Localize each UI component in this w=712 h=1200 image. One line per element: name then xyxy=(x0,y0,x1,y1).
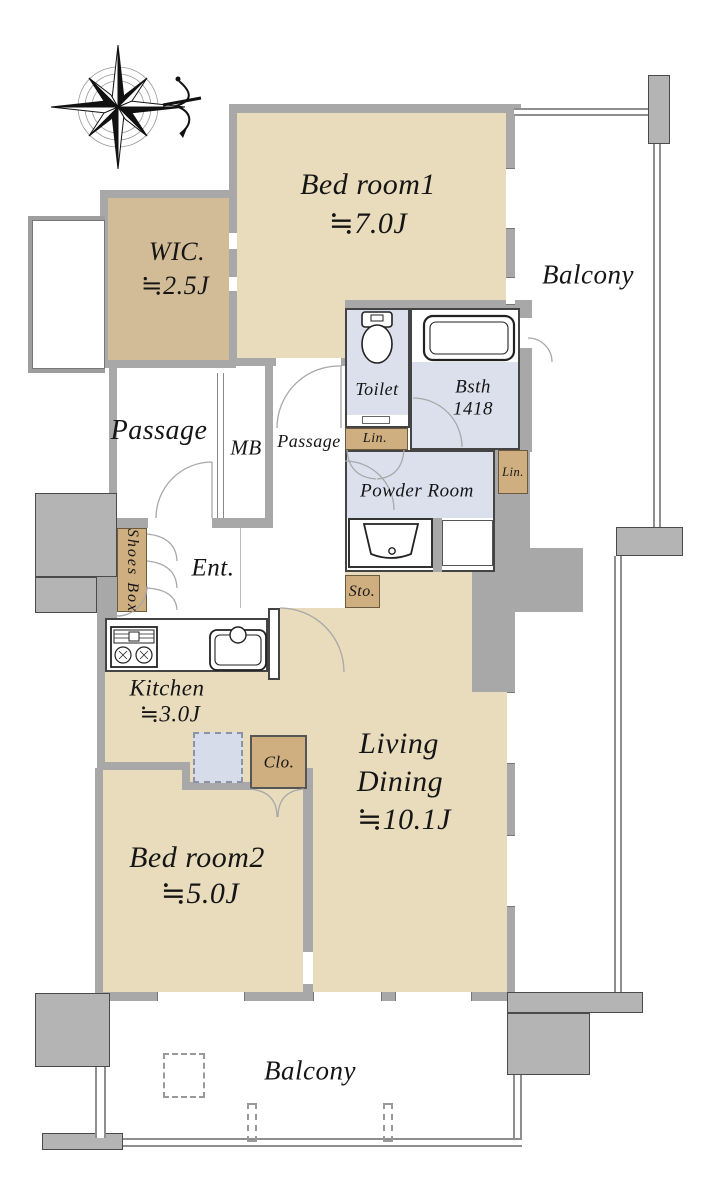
dining-label: Dining xyxy=(357,767,443,797)
floorplan-canvas: Bed room1 ≒7.0J WIC. ≒2.5J Balcony Toile… xyxy=(0,0,712,1200)
bath-label: Bsth xyxy=(455,378,491,397)
toilet-label: Toilet xyxy=(355,380,398,398)
meter-box-label: MB xyxy=(230,438,261,459)
linen2-label: Lin. xyxy=(502,466,524,479)
sink-icon xyxy=(208,624,268,672)
powder-room-label: Powder Room xyxy=(360,482,474,501)
living-label: Living xyxy=(359,729,439,759)
bath-size: 1418 xyxy=(453,400,493,419)
balcony-bottom-label: Balcony xyxy=(264,1058,356,1085)
toilet-icon xyxy=(355,311,399,365)
kitchen-label: Kitchen xyxy=(129,677,204,700)
closet-label: Clo. xyxy=(264,754,295,771)
passage-label: Passage xyxy=(111,417,208,445)
bedroom2-label: Bed room2 xyxy=(129,843,265,873)
bathtub-icon xyxy=(422,314,516,362)
wic-size: ≒2.5J xyxy=(141,273,209,299)
stove-icon xyxy=(110,626,158,668)
entrance-label: Ent. xyxy=(192,556,235,581)
storage-label: Sto. xyxy=(349,584,375,600)
kitchen-size: ≒3.0J xyxy=(140,703,201,726)
bedroom2-size: ≒5.0J xyxy=(161,879,239,909)
linen1-label: Lin. xyxy=(363,432,387,446)
balcony-top-label: Balcony xyxy=(542,262,634,289)
living-dining-size: ≒10.1J xyxy=(357,805,451,835)
passage2-label: Passage xyxy=(277,432,341,450)
bedroom1-label: Bed room1 xyxy=(300,170,436,200)
wic-label: WIC. xyxy=(149,239,205,265)
bedroom1-size: ≒7.0J xyxy=(329,209,407,239)
shoes-box-label: Shoes Box xyxy=(124,529,140,613)
compass-rose-icon xyxy=(43,35,208,185)
washbasin-icon xyxy=(352,520,430,566)
